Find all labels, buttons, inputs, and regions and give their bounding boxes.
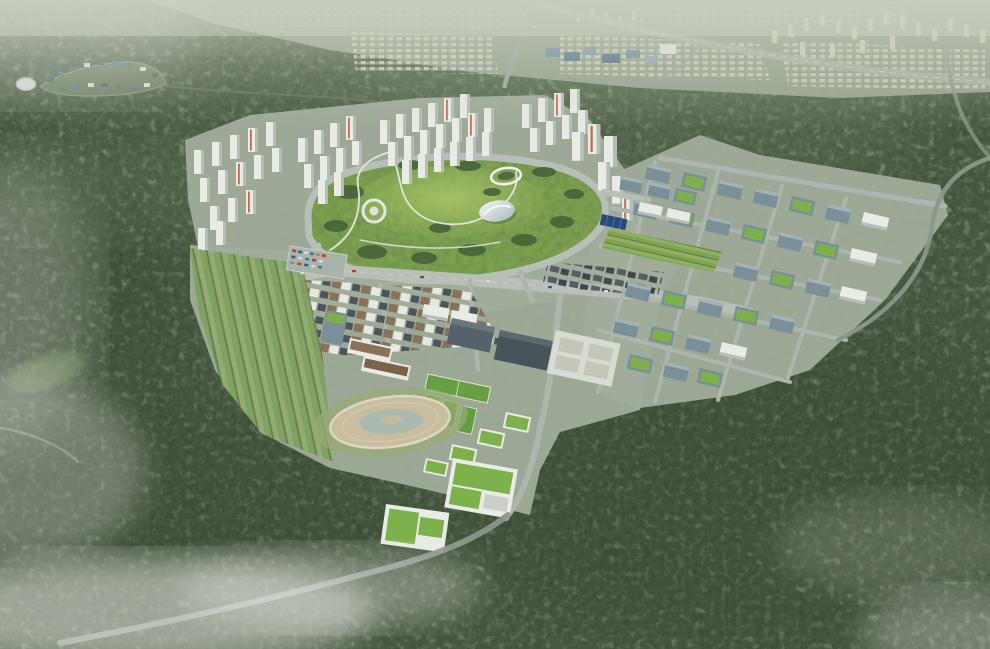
tower [248, 128, 258, 152]
tower [194, 150, 204, 174]
tower [200, 178, 210, 202]
tower [304, 164, 314, 188]
tower [336, 148, 346, 172]
tower [198, 228, 208, 252]
tower [228, 198, 238, 222]
tower [402, 160, 412, 184]
circular-plaza: Circular plaza structure on the park's w… [363, 200, 385, 222]
tower [236, 162, 246, 186]
tower [246, 190, 256, 214]
tower [404, 136, 414, 160]
tower [254, 155, 264, 179]
tower [482, 132, 492, 156]
scene-canvas: Dense forested hills surrounding the dev… [0, 0, 990, 649]
tower [530, 128, 540, 152]
tower [334, 172, 344, 196]
tower [450, 142, 460, 166]
tower [272, 148, 282, 172]
tower [352, 141, 362, 165]
tower [314, 130, 324, 154]
tower [320, 156, 330, 180]
aerial-rendering: Dense forested hills surrounding the dev… [0, 0, 990, 649]
tower [420, 130, 430, 154]
tower [572, 132, 584, 161]
tower [466, 137, 476, 161]
tower [388, 142, 398, 166]
tower [418, 154, 428, 178]
tower [216, 221, 226, 245]
tower [598, 162, 610, 191]
tower [230, 135, 240, 159]
tower [298, 138, 308, 162]
tower [212, 142, 222, 166]
tower [218, 170, 228, 194]
tower [434, 148, 444, 172]
tower [318, 180, 328, 204]
